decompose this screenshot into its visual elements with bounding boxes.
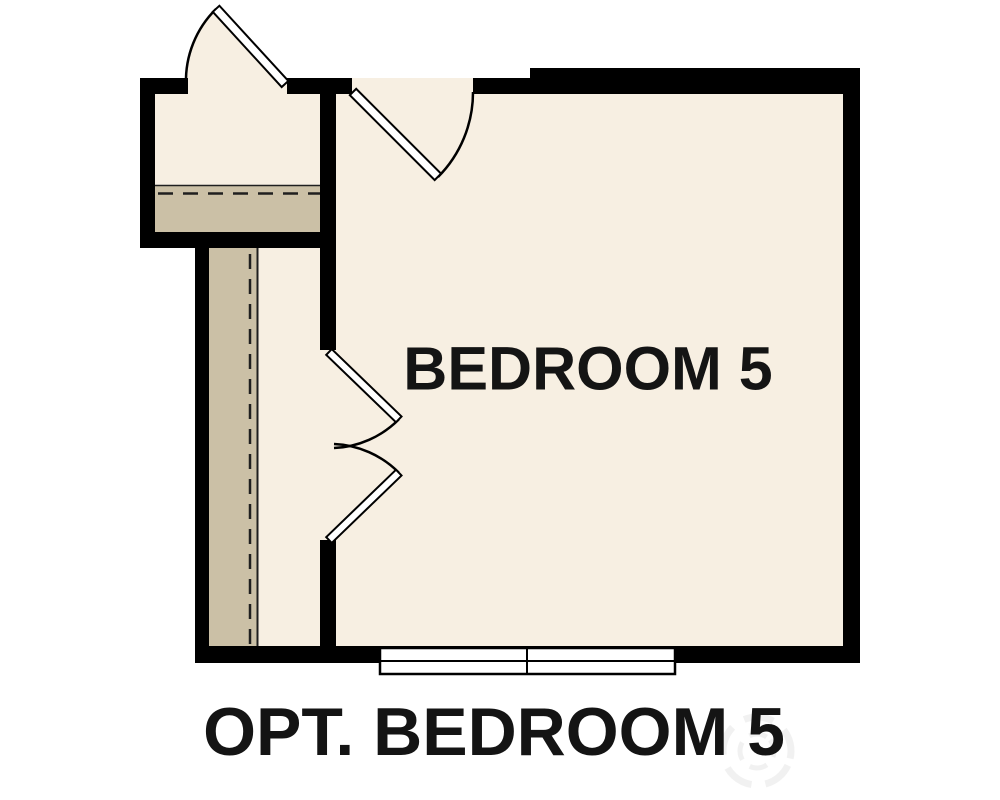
room-label: BEDROOM 5: [403, 339, 772, 400]
vestibule-bottom-wall: [140, 232, 336, 248]
hallway-floor: [257, 248, 320, 647]
floor-plan-canvas: BEDROOM 5 OPT. BEDROOM 5: [0, 0, 1000, 800]
top-wall-main: [530, 68, 860, 94]
plan-caption: OPT. BEDROOM 5: [203, 698, 785, 766]
bedroom-window: [380, 648, 675, 674]
double-door-opening: [320, 350, 336, 540]
top-wall-between-doors: [287, 78, 352, 94]
bedroom-entry-opening: [352, 78, 473, 95]
vestibule-left-wall: [140, 78, 155, 248]
bedroom-left-wall-lower: [320, 540, 336, 647]
right-wall: [843, 68, 860, 663]
bedroom-left-wall-upper: [320, 93, 336, 350]
stair-left-wall: [195, 248, 209, 663]
top-wall-right-of-entry: [473, 78, 530, 94]
